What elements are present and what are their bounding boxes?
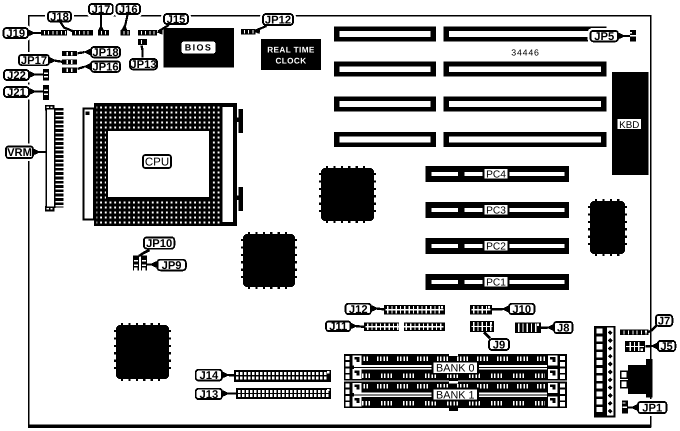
svg-text:JP17: JP17 xyxy=(21,55,47,67)
svg-text:J21: J21 xyxy=(7,87,26,99)
svg-text:BANK 1: BANK 1 xyxy=(436,389,474,401)
svg-text:34446: 34446 xyxy=(511,48,539,58)
svg-text:J15: J15 xyxy=(167,14,186,26)
svg-text:PC1: PC1 xyxy=(486,277,506,288)
svg-text:J17: J17 xyxy=(92,4,111,16)
svg-text:J7: J7 xyxy=(658,316,670,328)
svg-text:JP13: JP13 xyxy=(130,59,156,71)
svg-text:J19: J19 xyxy=(6,28,25,40)
svg-text:J8: J8 xyxy=(557,322,569,334)
svg-text:JP12: JP12 xyxy=(265,15,291,27)
svg-text:KBD: KBD xyxy=(619,120,639,131)
svg-text:CPU: CPU xyxy=(145,157,169,169)
svg-text:J11: J11 xyxy=(329,321,347,333)
svg-text:J12: J12 xyxy=(349,304,368,316)
svg-text:JP10: JP10 xyxy=(146,238,172,250)
svg-text:J22: J22 xyxy=(7,70,26,82)
svg-text:J18: J18 xyxy=(50,12,69,24)
svg-text:PC2: PC2 xyxy=(486,241,506,252)
svg-text:VRM: VRM xyxy=(7,147,32,159)
svg-text:REAL TIME: REAL TIME xyxy=(267,45,315,54)
svg-text:J13: J13 xyxy=(200,389,219,401)
svg-text:JP18: JP18 xyxy=(92,47,118,59)
svg-text:JP1: JP1 xyxy=(642,402,662,414)
svg-text:J5: J5 xyxy=(660,341,672,353)
svg-text:PC4: PC4 xyxy=(486,169,506,180)
svg-text:PC3: PC3 xyxy=(486,205,506,216)
svg-text:J10: J10 xyxy=(512,304,531,316)
svg-text:J9: J9 xyxy=(493,340,505,352)
svg-text:J16: J16 xyxy=(119,4,138,16)
svg-text:JP9: JP9 xyxy=(162,260,182,272)
svg-text:JP5: JP5 xyxy=(594,31,614,43)
svg-text:J14: J14 xyxy=(200,370,219,382)
svg-text:BIOS: BIOS xyxy=(185,43,213,53)
svg-text:BANK 0: BANK 0 xyxy=(436,363,474,375)
svg-text:CLOCK: CLOCK xyxy=(275,57,306,66)
svg-text:JP16: JP16 xyxy=(92,62,118,74)
